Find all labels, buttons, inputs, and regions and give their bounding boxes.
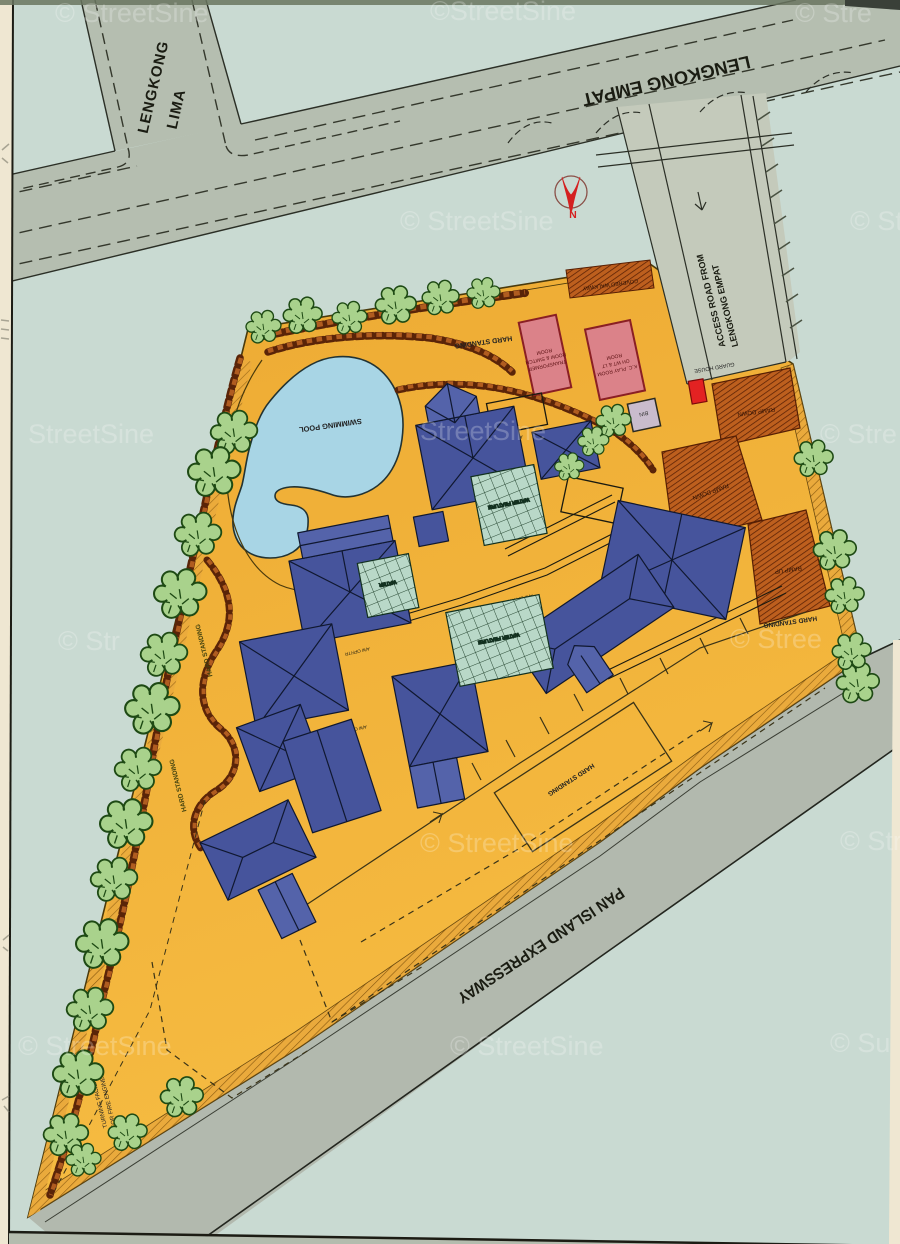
svg-text:© Str: © Str (850, 206, 900, 236)
svg-text:© StreetSine: © StreetSine (420, 828, 573, 858)
svg-text:StreetSine: StreetSine (28, 419, 154, 449)
svg-text:© Str: © Str (840, 826, 900, 856)
svg-text:©StreetSine: ©StreetSine (430, 0, 576, 26)
svg-text:© StreetSine: © StreetSine (450, 1031, 603, 1061)
svg-text:StreetSine: StreetSine (420, 416, 546, 446)
svg-text:© StreetSine: © StreetSine (400, 206, 553, 236)
svg-text:© Stre: © Stre (820, 419, 897, 449)
svg-text:N: N (569, 208, 577, 220)
svg-text:© StreetSine: © StreetSine (18, 1031, 171, 1061)
svg-text:© Stree: © Stree (730, 624, 822, 654)
svg-text:© Str: © Str (58, 626, 120, 656)
svg-text:© Su: © Su (830, 1028, 890, 1058)
svg-text:© StreetSine: © StreetSine (55, 0, 208, 28)
svg-text:© Stre: © Stre (795, 0, 872, 28)
